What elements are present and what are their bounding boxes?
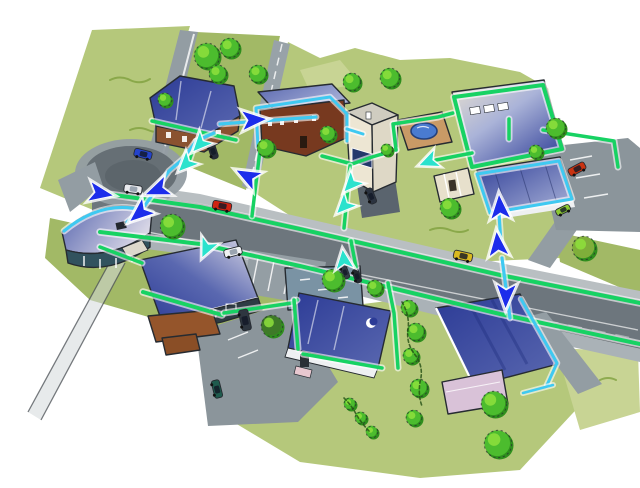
tree-highlight [264, 318, 274, 328]
tree-highlight [405, 350, 412, 357]
pool-water [411, 123, 437, 139]
illustration-canvas: Hand-drawn aerial sketch of a suburban n… [0, 0, 640, 488]
window [166, 132, 171, 138]
roof-mark [318, 289, 328, 290]
neighborhood-network-scene [0, 0, 640, 488]
tree-highlight [443, 200, 452, 209]
tree-highlight [383, 145, 388, 150]
tree-highlight [383, 70, 392, 79]
attic-window [366, 112, 371, 119]
tree-highlight [251, 67, 259, 75]
tree-highlight [531, 147, 537, 153]
tree-highlight [485, 394, 497, 406]
tree-highlight [369, 282, 376, 289]
car-cabin [129, 186, 137, 192]
roof-mark [338, 297, 348, 298]
tree-highlight [322, 128, 329, 135]
tree-highlight [488, 433, 501, 446]
tree-highlight [198, 46, 210, 58]
tree-highlight [223, 40, 232, 49]
tree-highlight [408, 412, 415, 419]
skylight [498, 102, 509, 110]
tree-highlight [549, 120, 558, 129]
window [182, 136, 187, 142]
roof-mark [300, 279, 310, 280]
tree-highlight [211, 67, 219, 75]
tree-highlight [409, 325, 417, 333]
tree-highlight [575, 239, 586, 250]
tree-highlight [160, 95, 166, 101]
tree-highlight [163, 217, 174, 228]
door [300, 136, 307, 148]
roof-moon-vent-shade [370, 318, 378, 326]
skylight [484, 104, 495, 112]
tree-highlight [259, 141, 267, 149]
skylight [470, 106, 481, 114]
tree-highlight [345, 75, 353, 83]
